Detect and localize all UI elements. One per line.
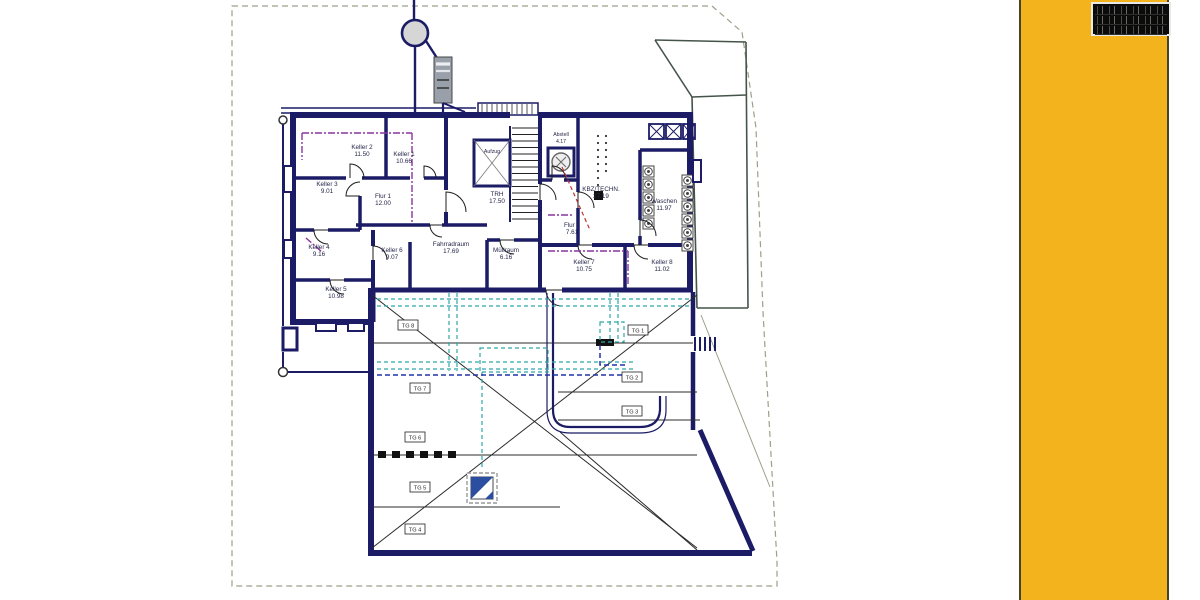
svg-text:TG 7: TG 7: [414, 387, 426, 393]
room-area: 17.50: [489, 198, 505, 205]
room-area: 11.97: [656, 205, 672, 212]
room-label: TRH: [491, 191, 504, 198]
room-label: Keller 1: [393, 151, 415, 158]
room-area: 9.16: [313, 251, 326, 258]
svg-text:TG 6: TG 6: [409, 436, 421, 442]
title-block-row: [1095, 16, 1167, 25]
room-area: 27.19: [593, 193, 609, 200]
room-area: 10.98: [328, 293, 344, 300]
elevator-icon: [474, 140, 510, 186]
room-label: Abstell: [553, 132, 569, 138]
svg-text:TG 2: TG 2: [626, 376, 638, 382]
parking-spot-label: TG 1: [628, 325, 648, 335]
svg-text:TG 8: TG 8: [402, 324, 414, 330]
svg-text:TG 1: TG 1: [632, 329, 644, 335]
parking-spot-label: TG 8: [398, 320, 418, 330]
room-label: Flur 1: [375, 193, 392, 200]
parking-spot-label: TG 6: [405, 432, 425, 442]
ventilation-ducts: [377, 293, 690, 470]
parking-spot-label: TG 4: [405, 524, 425, 534]
svg-text:TG 4: TG 4: [409, 528, 421, 534]
room-area: 10.75: [576, 266, 592, 273]
room-area: 11.50: [354, 151, 370, 158]
floorplan-page: TG 1 TG 2 TG 3 TG 8 TG 7 TG 6 TG 5 TG 4 …: [0, 0, 1200, 600]
room-area: 12.00: [375, 200, 391, 207]
room-label: Keller 4: [308, 244, 330, 251]
parking-spot-label: TG 3: [622, 406, 642, 416]
svg-text:TG 5: TG 5: [414, 486, 426, 492]
room-area: 11.02: [654, 266, 670, 273]
sidebar-strip: KG: [1019, 0, 1169, 600]
room-label: Fahrradraum: [433, 241, 469, 248]
parking-spot-label: TG 2: [622, 372, 642, 382]
room-label: Keller 3: [316, 181, 338, 188]
room-label: Müllraum: [493, 247, 519, 254]
manhole-icon: [402, 20, 428, 46]
room-area: 17.69: [443, 248, 459, 255]
room-label: KBZ/TECHN.: [582, 186, 620, 193]
escape-route-line: [562, 167, 590, 230]
room-label: Aufzug: [484, 149, 500, 155]
svg-text:TG 3: TG 3: [626, 410, 638, 416]
room-label: Keller 5: [325, 286, 347, 293]
floorplan-drawing: TG 1 TG 2 TG 3 TG 8 TG 7 TG 6 TG 5 TG 4 …: [0, 0, 1020, 600]
parking-spot-label: TG 5: [410, 482, 430, 492]
title-block-row: [1095, 26, 1167, 35]
room-area: 6.16: [500, 254, 513, 261]
parking-spot-label: TG 7: [410, 383, 430, 393]
room-label: Keller 2: [351, 144, 373, 151]
room-label: Keller 6: [381, 247, 403, 254]
room-area: 7.61: [566, 229, 579, 236]
room-label: Keller 7: [573, 259, 595, 266]
title-block: [1091, 2, 1171, 36]
drive-path: [547, 293, 666, 433]
ramp-hatch: [695, 337, 715, 351]
logo-marker-icon: [467, 473, 497, 503]
garage-lines: [372, 295, 700, 550]
room-label: Waschen: [651, 198, 678, 205]
room-area: 10.66: [396, 158, 412, 165]
stairs-icon: [512, 128, 538, 219]
utility-lines: [281, 0, 476, 113]
room-label: Flur 2: [564, 222, 581, 229]
room-label: Keller 8: [651, 259, 673, 266]
room-area: 4.17: [556, 139, 566, 145]
room-area: 9.01: [321, 188, 334, 195]
conduit-dashed: [377, 345, 635, 375]
room-area: 9.07: [386, 254, 399, 261]
title-block-row: [1095, 6, 1167, 15]
